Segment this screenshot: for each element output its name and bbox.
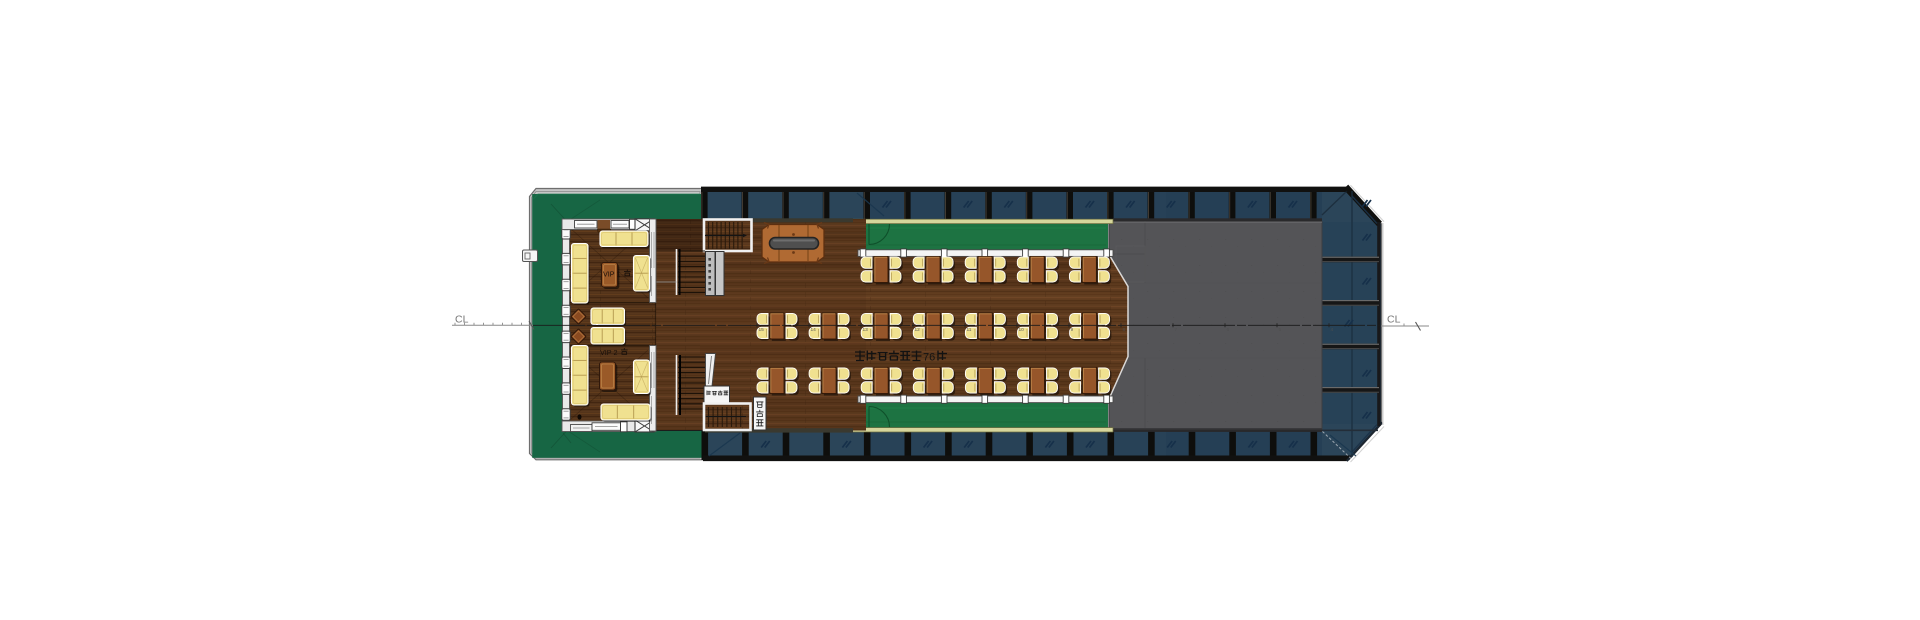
- svg-text:13: 13: [863, 327, 869, 333]
- svg-text:4: 4: [1331, 327, 1334, 333]
- svg-text:8: 8: [1123, 327, 1126, 333]
- svg-text:15: 15: [759, 327, 765, 333]
- svg-text:5: 5: [1279, 327, 1282, 333]
- svg-text:12: 12: [915, 327, 921, 333]
- svg-text:76: 76: [923, 352, 935, 364]
- svg-text:6: 6: [1227, 327, 1230, 333]
- svg-text:VIP 1: VIP 1: [603, 270, 620, 279]
- svg-text:CL: CL: [455, 314, 469, 326]
- svg-text:9: 9: [1071, 327, 1074, 333]
- svg-text:11: 11: [967, 327, 972, 333]
- svg-text:7: 7: [1175, 327, 1178, 333]
- svg-text:VIP 2: VIP 2: [600, 348, 617, 357]
- svg-text:CL: CL: [1387, 314, 1401, 326]
- svg-text:10: 10: [1019, 327, 1025, 333]
- svg-text:14: 14: [811, 327, 817, 333]
